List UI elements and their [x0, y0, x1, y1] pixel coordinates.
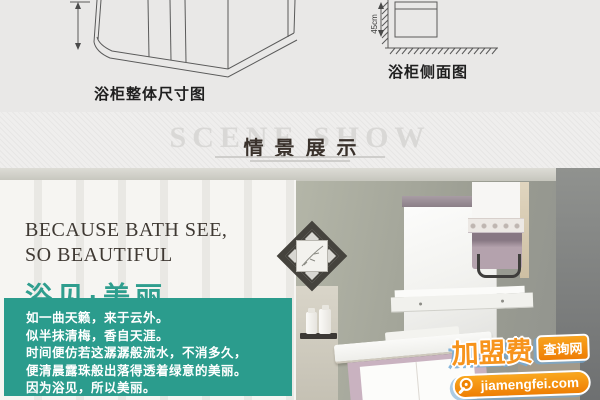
wall-shelf: [391, 286, 534, 317]
poem-line: 如一曲天籁，来于云外。: [26, 310, 284, 328]
poem-line: 似半抹清梅，香自天涯。: [26, 328, 284, 346]
wall-column: [296, 286, 338, 400]
headline-en-line1: BECAUSE BATH SEE,: [25, 218, 227, 243]
scene-show-banner: SCENE SHOW 情景展示: [0, 112, 600, 168]
poem-text-box: 如一曲天籁，来于云外。 似半抹清梅，香自天涯。 时间便仿若这潺潺般流水，不消多久…: [4, 298, 292, 396]
banner-tagline-line: [215, 156, 385, 158]
bottle-cap: [322, 305, 329, 310]
watermark-brand-row: 加盟费 查询网: [451, 328, 591, 372]
toiletry-bottle: [319, 309, 331, 334]
cabinet-side-view-drawing-icon: 45cm: [370, 0, 600, 58]
headline-en-line2: SO BEAUTIFUL: [25, 243, 227, 268]
banner-tagline-line: [250, 160, 350, 162]
side-view-label: 浴柜侧面图: [388, 61, 468, 82]
cabinet-3d-dimension-drawing-icon: [0, 0, 300, 80]
bottle-shelf-board: [300, 333, 337, 339]
shelf-screw: [419, 302, 422, 305]
product-detail-image: 浴柜整体尺寸图 45cm 浴柜侧面图 SCENE SHOW 情景展示: [0, 0, 600, 400]
toiletry-bottle: [306, 312, 317, 334]
bathroom-scene-photo: BECAUSE BATH SEE, SO BEAUTIFUL 浴见·美丽 如一曲…: [0, 168, 600, 400]
overall-dimension-label: 浴柜整体尺寸图: [60, 83, 240, 104]
shelf-screw: [501, 300, 504, 303]
dimension-diagram-section: 浴柜整体尺寸图 45cm 浴柜侧面图: [0, 0, 600, 112]
poem-line: 因为浴见，所以美丽。: [26, 380, 284, 398]
watermark-domain-pill: jiamengfei.com: [452, 370, 591, 400]
jiamengfei-watermark: 加盟费 查询网 jiamengfei.com: [451, 328, 592, 400]
magnifier-icon: [458, 378, 476, 396]
watermark-brand-main: 加盟费: [451, 330, 533, 372]
watermark-brand-tag: 查询网: [536, 334, 590, 363]
branch-art-icon: [297, 241, 327, 271]
watermark-domain: jiamengfei.com: [480, 375, 579, 393]
bottle-cap: [308, 308, 315, 313]
cabinet-carved-band: [468, 218, 524, 233]
diamond-center-art: [296, 240, 328, 272]
poem-line: 便清晨露珠般出落得透着绿意的美丽。: [26, 363, 284, 381]
poem-line: 时间便仿若这潺潺般流水，不消多久，: [26, 345, 284, 363]
side-height-dimension: 45cm: [370, 14, 379, 34]
diamond-wall-art: [276, 220, 348, 292]
towel-bar: [477, 254, 521, 278]
